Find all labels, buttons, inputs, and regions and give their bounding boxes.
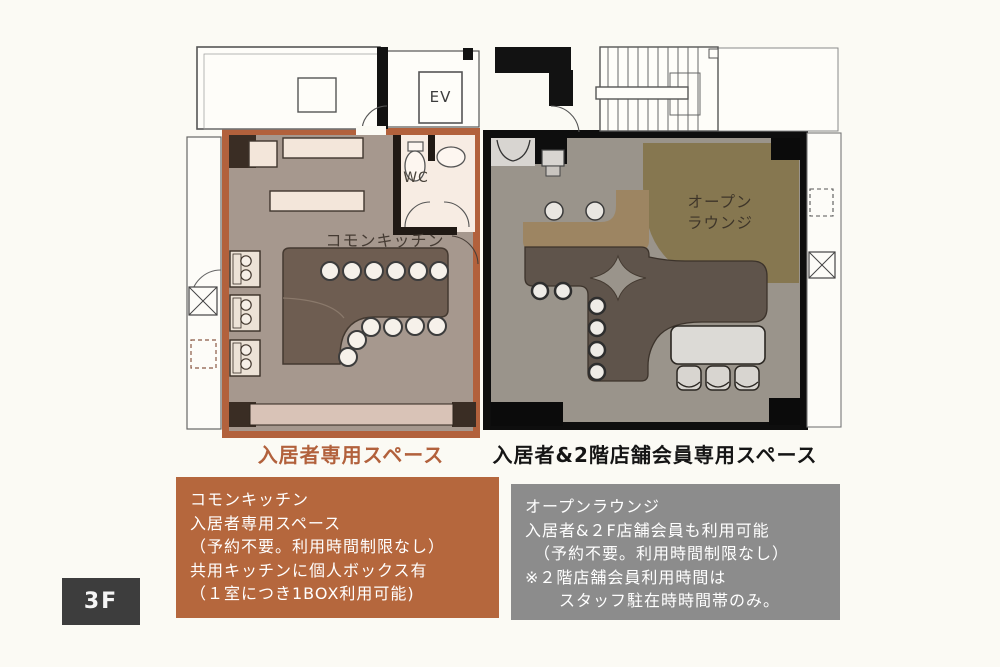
kitchen-room-label: コモンキッチン — [305, 227, 465, 251]
kitchen-info-box: コモンキッチン 入居者専用スペース （予約不要。利用時間制限なし） 共用キッチン… — [176, 477, 499, 618]
kitchen-info-line: 入居者専用スペース — [190, 512, 485, 536]
lounge-info-line: 入居者&２F店舗会員も利用可能 — [525, 519, 826, 543]
kitchen-zone — [222, 128, 480, 438]
door-arc-corridor — [551, 106, 579, 132]
lounge-info-line: オープンラウンジ — [525, 495, 826, 519]
elevator-label: EV — [419, 88, 462, 106]
kitchen-info-line: （予約不要。利用時間制限なし） — [190, 535, 485, 559]
kitchen-caption: 入居者専用スペース — [222, 439, 480, 468]
lounge-room-label-line2: ラウンジ — [655, 213, 785, 234]
kitchen-info-line: （１室につき1BOX利用可能) — [190, 582, 485, 606]
floor-badge: 3F — [62, 578, 140, 625]
lounge-info-line: （予約不要。利用時間制限なし） — [525, 542, 826, 566]
left-balcony — [187, 137, 221, 429]
lounge-info-line: ※２階店舗会員利用時間は — [525, 566, 826, 590]
floor-plan: EV WC コモンキッチン オープン ラウンジ — [0, 0, 1000, 667]
lounge-caption: 入居者&2階店舗会員専用スペース — [455, 439, 855, 468]
lounge-info-box: オープンラウンジ 入居者&２F店舗会員も利用可能 （予約不要。利用時間制限なし）… — [511, 484, 840, 620]
wc-label: WC — [398, 170, 434, 186]
kitchen-info-line: 共用キッチンに個人ボックス有 — [190, 559, 485, 583]
lounge-room-label: オープン ラウンジ — [655, 192, 785, 234]
lounge-room-label-line1: オープン — [655, 192, 785, 213]
lounge-info-line: スタッフ駐在時時間帯のみ。 — [525, 589, 826, 613]
right-balcony — [807, 133, 841, 427]
floor-plan-page: EV WC コモンキッチン オープン ラウンジ 入居者専用スペース 入居者&2階… — [0, 0, 1000, 667]
wall-blocks — [377, 47, 573, 129]
backdrop-rooms — [197, 47, 838, 131]
lounge-zone — [483, 130, 808, 430]
stairs — [596, 47, 718, 131]
kitchen-info-line: コモンキッチン — [190, 488, 485, 512]
